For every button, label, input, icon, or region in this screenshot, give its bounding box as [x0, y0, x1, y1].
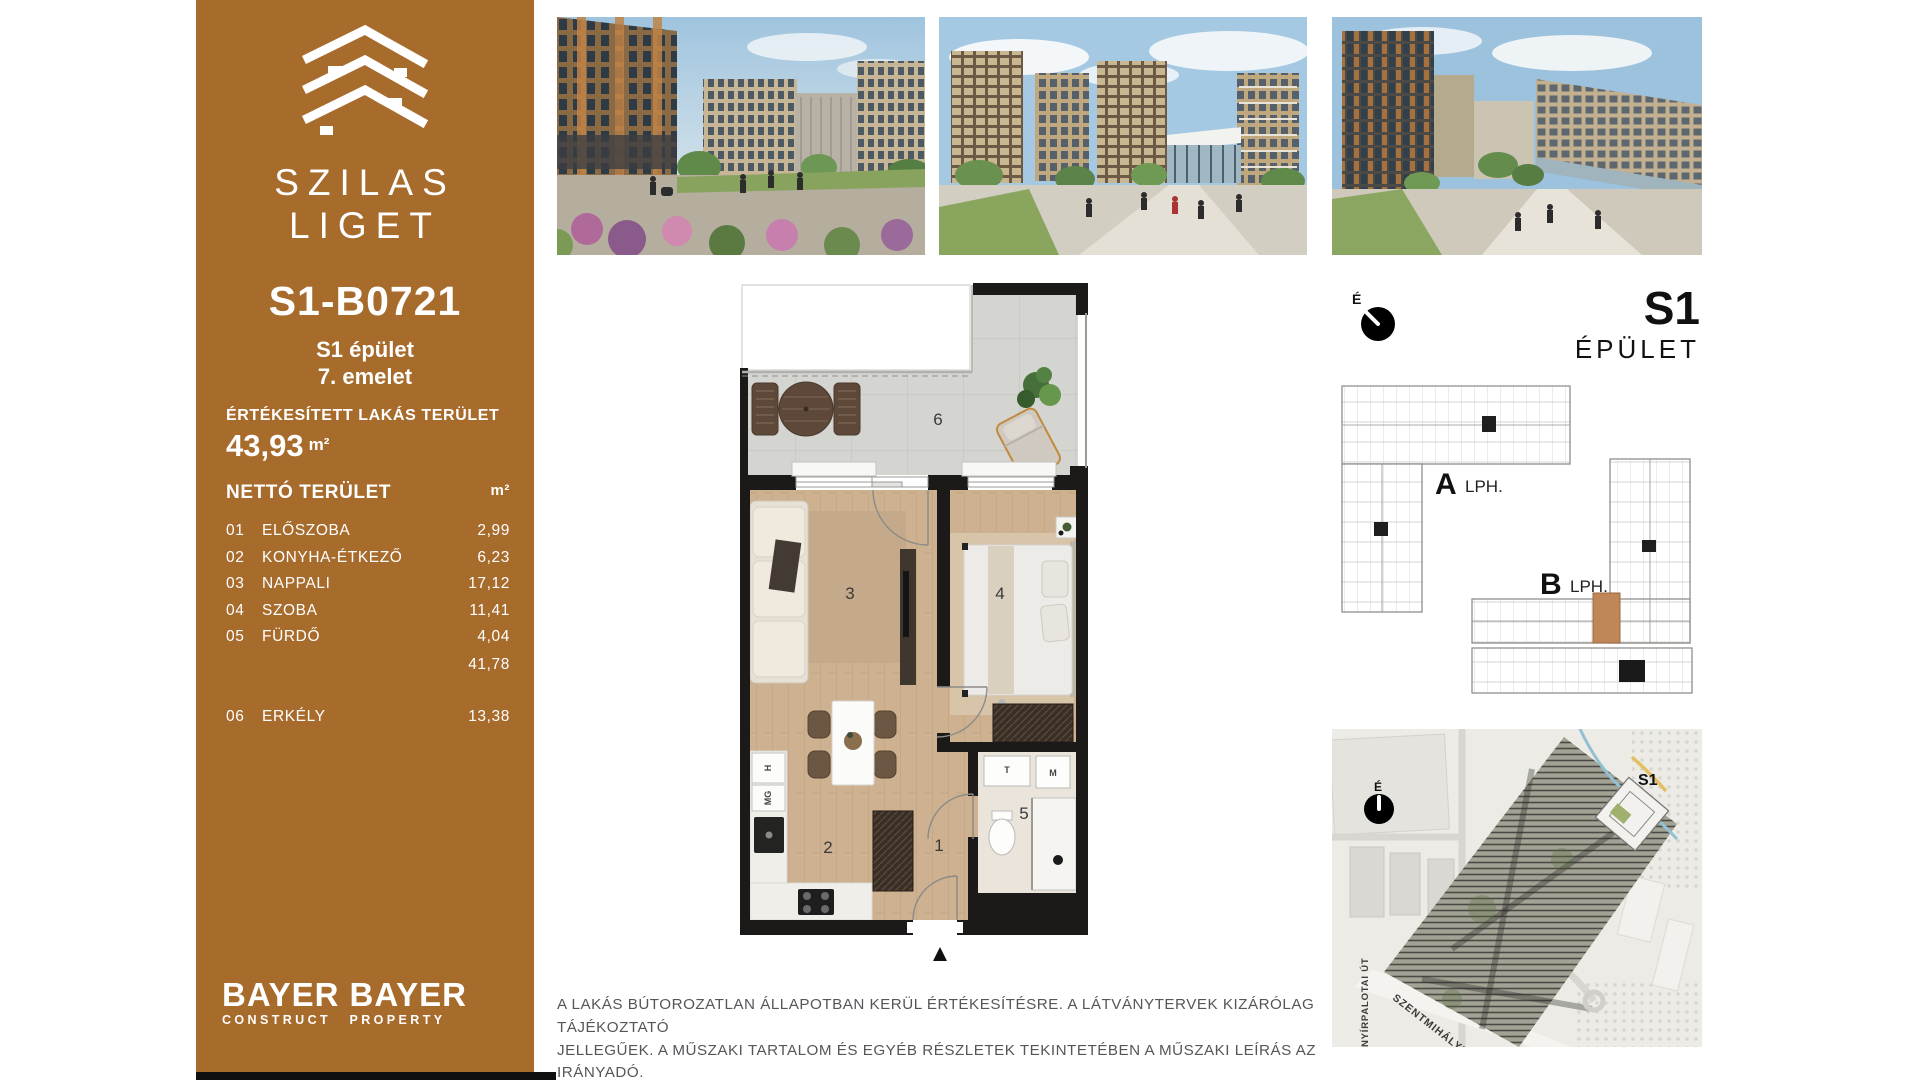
disclaimer-line1: A LAKÁS BÚTOROZATLAN ÁLLAPOTBAN KERÜL ÉR… — [557, 994, 1337, 1040]
sidebar: SZILAS LIGET S1-B0721 S1 épület 7. emele… — [196, 0, 534, 1072]
net-area-label: NETTÓ TERÜLET — [226, 482, 391, 503]
room-num: 05 — [226, 628, 262, 655]
net-area-unit: m² — [490, 482, 510, 499]
building-name: S1 épület — [196, 336, 534, 363]
fridge-label: H — [763, 765, 773, 772]
room-name: NAPPALI — [262, 575, 468, 602]
unit-code: S1-B0721 — [196, 278, 534, 325]
stair-b-letter: B — [1540, 568, 1562, 601]
floor-name: 7. emelet — [196, 363, 534, 390]
room-name: KONYHA-ÉTKEZŐ — [262, 549, 477, 576]
room-row-05: 05 FÜRDŐ 4,04 — [226, 628, 510, 655]
bedside-table — [1056, 517, 1077, 538]
outdoor-furniture — [752, 382, 860, 436]
sold-area-unit: m² — [309, 435, 330, 454]
sidebar-bottom-strip — [196, 1072, 556, 1080]
room-row-02: 02 KONYHA-ÉTKEZŐ 6,23 — [226, 549, 510, 576]
disclaimer: A LAKÁS BÚTOROZATLAN ÁLLAPOTBAN KERÜL ÉR… — [557, 994, 1337, 1080]
highlighted-unit — [1593, 593, 1620, 643]
stair-b-suffix: LPH. — [1570, 577, 1608, 596]
room-row-01: 01 ELŐSZOBA 2,99 — [226, 522, 510, 549]
room-name: FÜRDŐ — [262, 628, 477, 655]
hall-wardrobe — [873, 811, 913, 891]
brand-line2: LIGET — [196, 205, 534, 247]
wing-b — [1472, 459, 1692, 693]
render-photo-street — [1332, 17, 1702, 255]
stair-a-suffix: LPH. — [1465, 477, 1503, 496]
sold-area-value: 43,93m² — [226, 428, 516, 464]
subtotal-value: 41,78 — [468, 656, 510, 683]
logo-word: BAYER — [222, 980, 340, 1010]
tv-console — [900, 549, 916, 685]
room-number-4: 4 — [995, 584, 1004, 603]
north-compass-icon: É — [1344, 288, 1408, 352]
room-number-3: 3 — [845, 584, 854, 603]
room-num: 06 — [226, 708, 262, 735]
sofa — [750, 501, 808, 683]
room-number-1: 1 — [934, 836, 943, 855]
room-area: 2,99 — [477, 522, 510, 549]
basin-label: T — [1004, 765, 1010, 775]
compass-label: É — [1374, 779, 1382, 794]
datasheet-page: SZILAS LIGET S1-B0721 S1 épület 7. emele… — [0, 0, 1920, 1080]
disclaimer-line2: JELLEGŰEK. A MŰSZAKI TARTALOM ÉS EGYÉB R… — [557, 1040, 1337, 1080]
room-area: 13,38 — [468, 708, 510, 735]
room-area: 4,04 — [477, 628, 510, 655]
bayer-construct-logo: BAYER CONSTRUCT — [222, 980, 340, 1027]
bedroom-wardrobe — [993, 704, 1073, 742]
subtotal-row: 41,78 — [226, 656, 510, 683]
building-code: S1 — [1480, 288, 1700, 328]
street-name-nyirpalotai: NYÍRPALOTAI ÚT — [1359, 958, 1371, 1047]
washer-label: M — [1049, 768, 1057, 778]
bed — [962, 541, 1076, 697]
bayer-property-logo: BAYER PROPERTY — [350, 980, 468, 1027]
render-photo-courtyard — [557, 17, 925, 255]
neighbour-balcony — [742, 285, 970, 370]
room-number-2: 2 — [823, 838, 832, 857]
building-floor: S1 épület 7. emelet — [196, 336, 534, 390]
sitemap-s1-label: S1 — [1638, 772, 1658, 789]
stair-a-letter: A — [1435, 468, 1457, 501]
site-map: S1 É SZENTMIHÁLYI ÚT NYÍRPALOTAI ÚT — [1332, 729, 1702, 1047]
room-table: 01 ELŐSZOBA 2,99 02 KONYHA-ÉTKEZŐ 6,23 0… — [226, 522, 510, 735]
brand-line1: SZILAS — [196, 162, 534, 204]
room-num: 02 — [226, 549, 262, 576]
floor-keyplan: A LPH. B LPH. — [1332, 372, 1704, 694]
dishwasher-label: MG — [763, 791, 773, 806]
compass-label: É — [1352, 291, 1361, 307]
sold-area-number: 43,93 — [226, 428, 304, 463]
room-area: 11,41 — [469, 602, 510, 629]
building-word: ÉPÜLET — [1480, 334, 1700, 365]
room-area: 6,23 — [477, 549, 510, 576]
szilas-liget-logo-icon — [290, 22, 440, 152]
room-num: 01 — [226, 522, 262, 549]
room-name: ERKÉLY — [262, 708, 468, 735]
room-row-06: 06 ERKÉLY 13,38 — [226, 708, 510, 735]
room-number-5: 5 — [1019, 804, 1028, 823]
logo-word: BAYER — [350, 980, 468, 1010]
room-row-03: 03 NAPPALI 17,12 — [226, 575, 510, 602]
room-num: 03 — [226, 575, 262, 602]
logo-word: PROPERTY — [350, 1013, 468, 1027]
net-area-header: m² NETTÓ TERÜLET — [226, 482, 510, 504]
developer-logos: BAYER CONSTRUCT BAYER PROPERTY — [222, 980, 522, 1027]
room-name: SZOBA — [262, 602, 469, 629]
logo-word: CONSTRUCT — [222, 1013, 340, 1027]
room-number-6: 6 — [933, 410, 942, 429]
sold-area-label: ÉRTÉKESÍTETT LAKÁS TERÜLET — [226, 407, 516, 425]
apartment-floorplan: 1 2 3 4 5 6 H MG T M — [740, 283, 1100, 965]
room-row-04: 04 SZOBA 11,41 — [226, 602, 510, 629]
render-photo-plaza — [939, 17, 1307, 255]
entrance-arrow-icon — [933, 947, 947, 961]
room-num: 04 — [226, 602, 262, 629]
room-name: ELŐSZOBA — [262, 522, 477, 549]
room-area: 17,12 — [468, 575, 510, 602]
building-heading: S1 ÉPÜLET — [1480, 288, 1700, 365]
